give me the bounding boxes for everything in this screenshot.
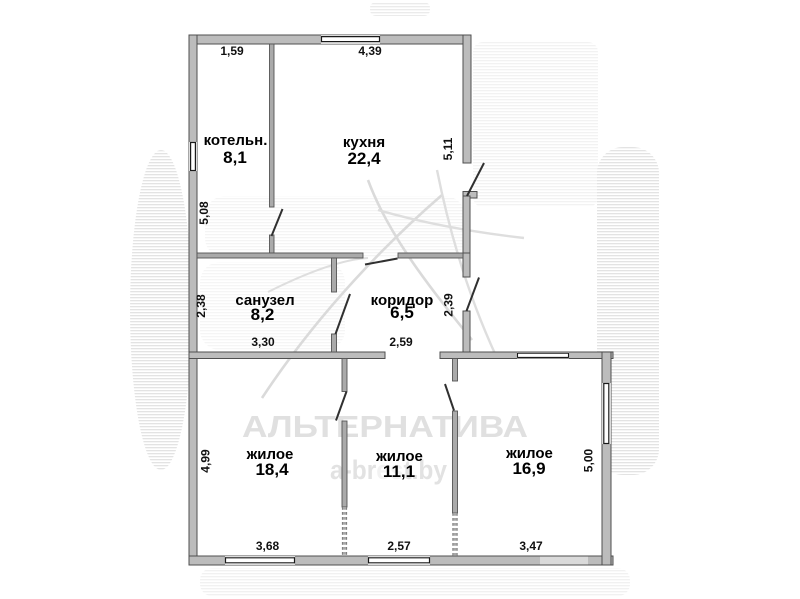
svg-text:5,11: 5,11 [441, 137, 455, 160]
svg-text:18,4: 18,4 [255, 460, 289, 479]
svg-text:котельн.: котельн. [204, 132, 268, 149]
svg-text:8,1: 8,1 [223, 148, 247, 167]
svg-text:2,57: 2,57 [387, 539, 411, 553]
svg-text:2,59: 2,59 [389, 335, 413, 349]
svg-text:3,68: 3,68 [256, 539, 280, 553]
svg-text:3,47: 3,47 [519, 539, 543, 553]
svg-text:АЛЬТЕРНАТИВА: АЛЬТЕРНАТИВА [242, 409, 528, 444]
svg-text:2,38: 2,38 [194, 294, 208, 318]
svg-text:4,39: 4,39 [358, 44, 382, 58]
svg-text:4,99: 4,99 [199, 449, 213, 473]
svg-text:22,4: 22,4 [347, 149, 381, 168]
svg-text:6,5: 6,5 [390, 303, 414, 322]
svg-text:1,59: 1,59 [220, 44, 244, 58]
svg-text:2,39: 2,39 [442, 293, 456, 317]
svg-text:16,9: 16,9 [512, 459, 545, 478]
svg-text:11,1: 11,1 [383, 462, 415, 481]
svg-text:5,08: 5,08 [197, 201, 211, 225]
svg-text:5,00: 5,00 [582, 448, 596, 472]
svg-text:8,2: 8,2 [251, 305, 275, 324]
svg-text:3,30: 3,30 [251, 335, 275, 349]
